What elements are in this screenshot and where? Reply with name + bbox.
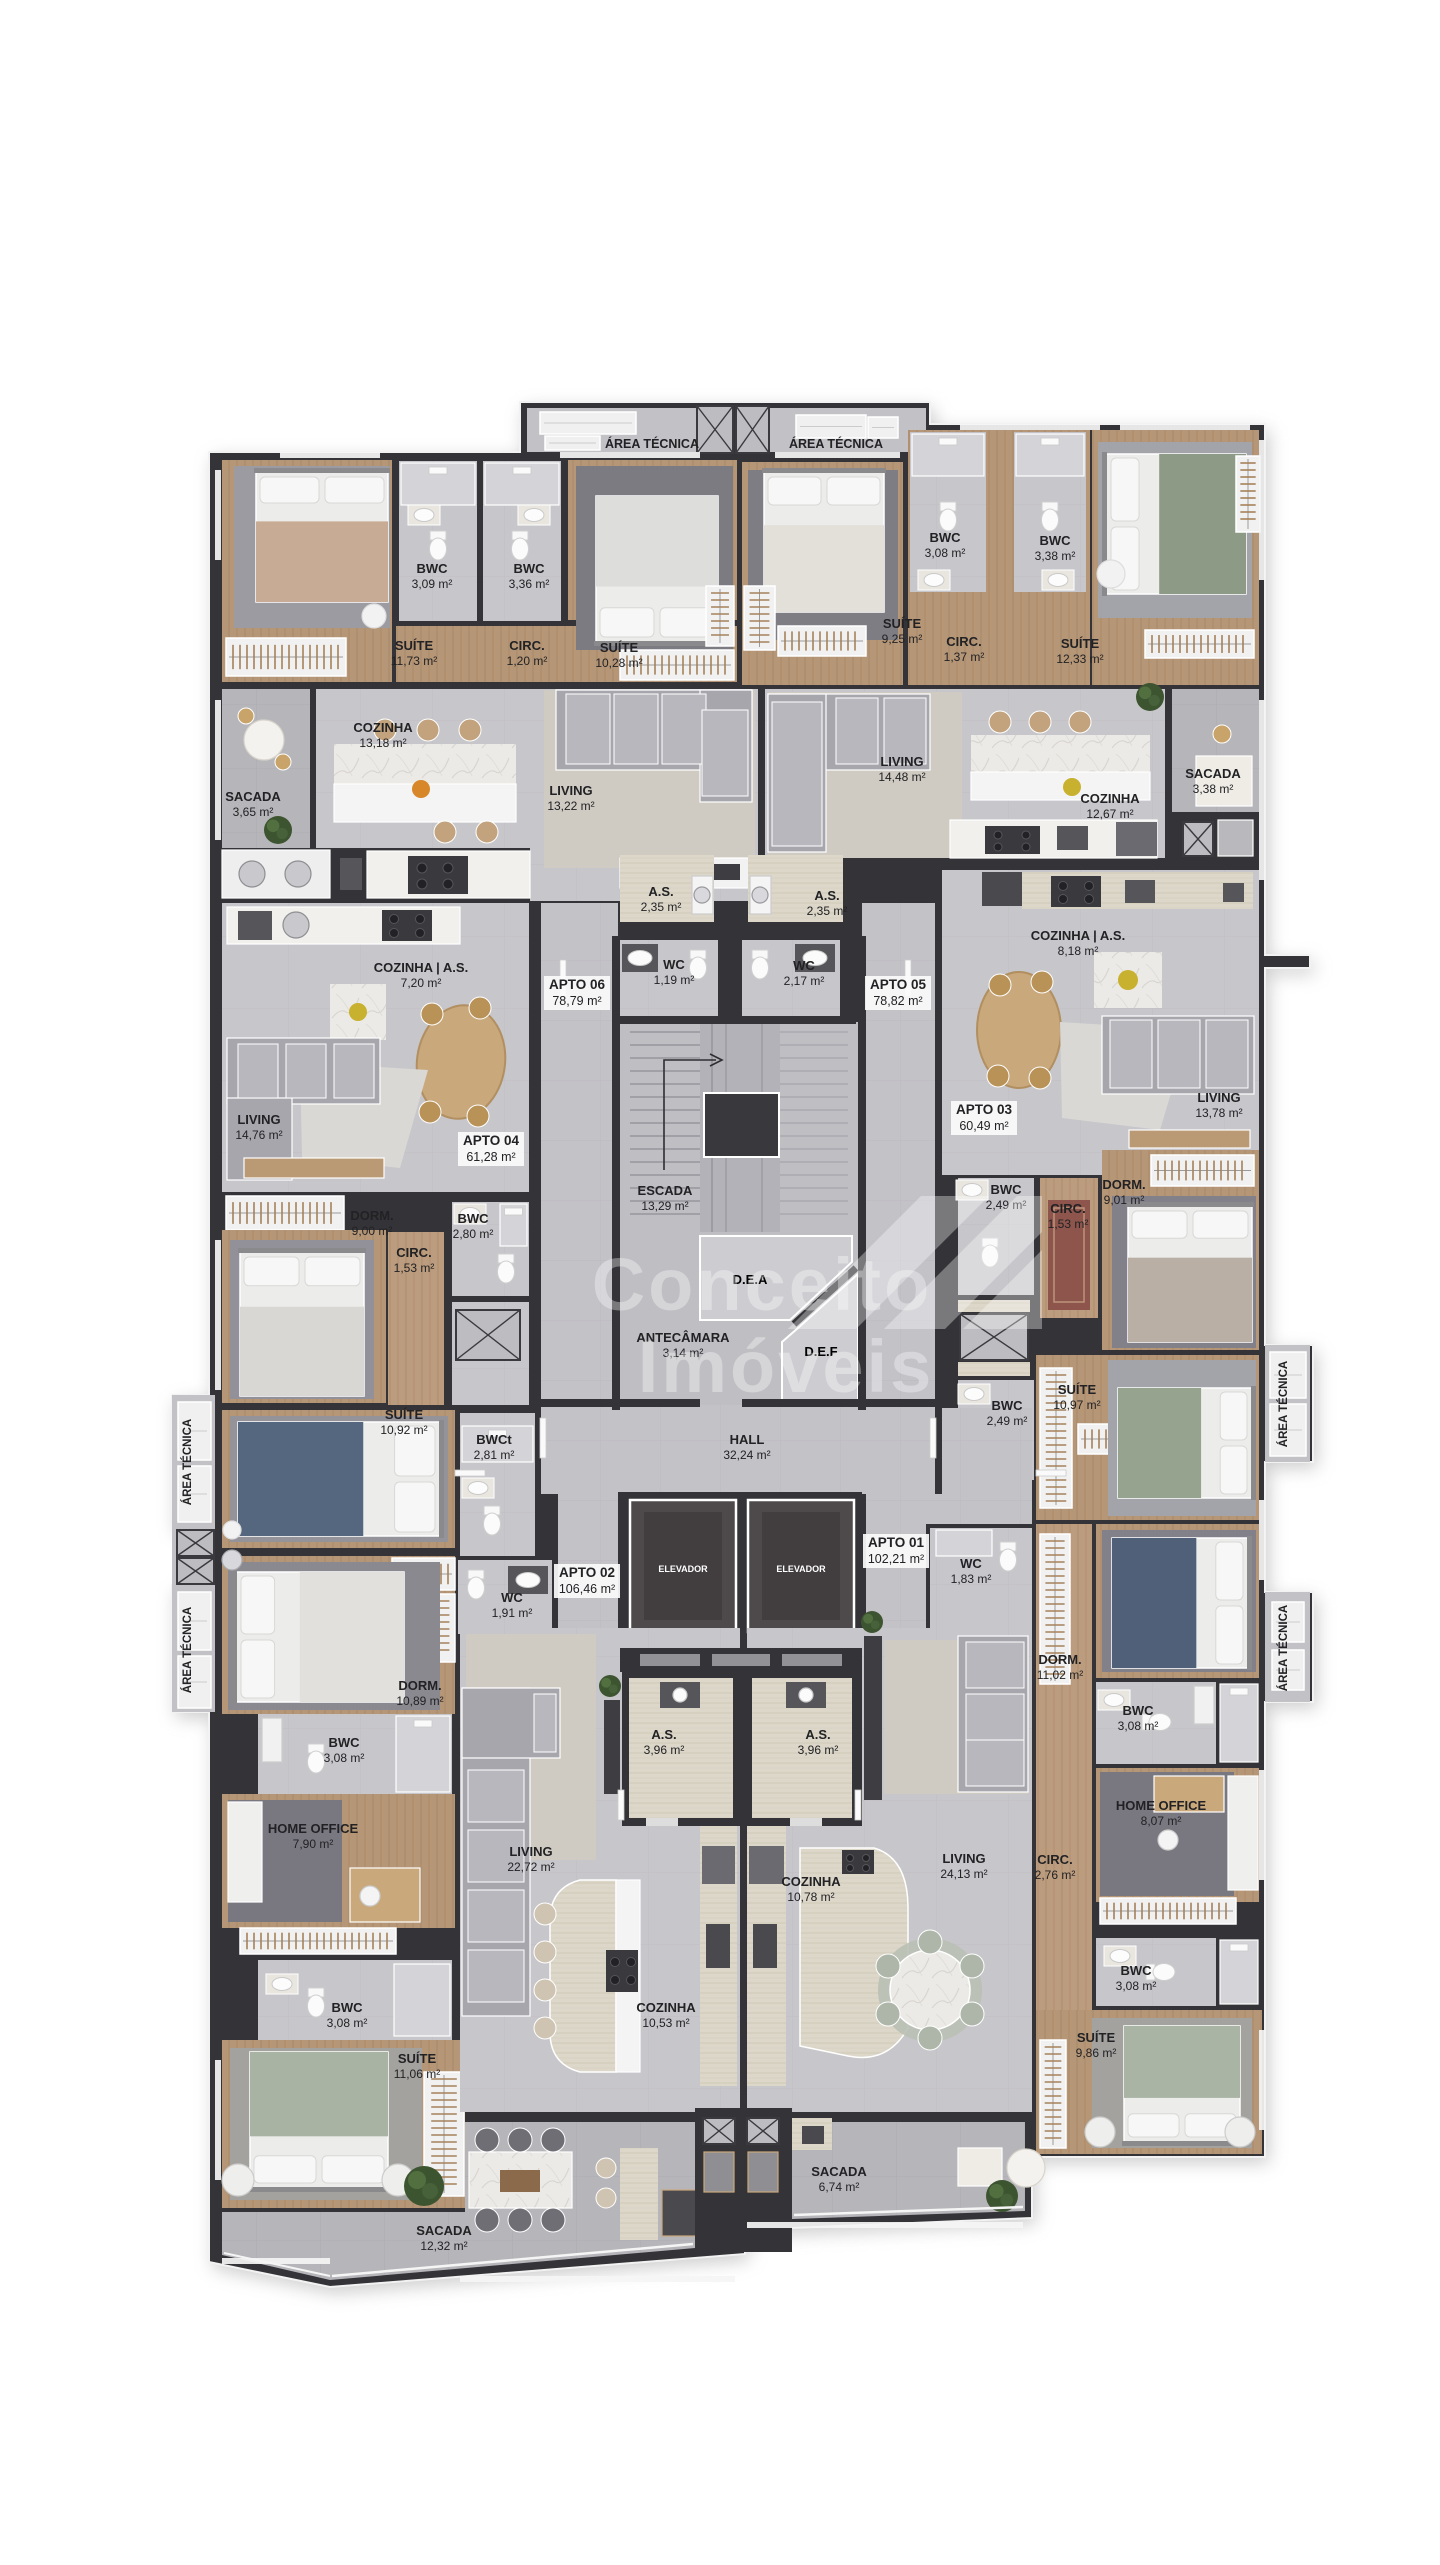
svg-text:BWC: BWC [1120, 1963, 1152, 1978]
svg-text:9,25 m²: 9,25 m² [882, 632, 923, 646]
svg-text:3,08 m²: 3,08 m² [1118, 1719, 1159, 1733]
svg-text:SUÍTE: SUÍTE [1058, 1382, 1097, 1397]
svg-text:SUÍTE: SUÍTE [398, 2051, 437, 2066]
svg-text:COZINHA | A.S.: COZINHA | A.S. [374, 960, 468, 975]
svg-text:WC: WC [960, 1556, 982, 1571]
svg-text:APTO 05: APTO 05 [870, 977, 927, 992]
svg-text:SACADA: SACADA [225, 789, 281, 804]
svg-text:SUÍTE: SUÍTE [883, 616, 922, 631]
svg-text:ÁREA TÉCNICA: ÁREA TÉCNICA [181, 1607, 194, 1693]
svg-text:BWC: BWC [416, 561, 448, 576]
svg-text:CIRC.: CIRC. [946, 634, 981, 649]
svg-text:8,18 m²: 8,18 m² [1058, 944, 1099, 958]
svg-text:1,83 m²: 1,83 m² [951, 1572, 992, 1586]
svg-text:A.S.: A.S. [805, 1727, 830, 1742]
svg-text:78,82 m²: 78,82 m² [873, 994, 922, 1008]
svg-text:22,72 m²: 22,72 m² [507, 1860, 554, 1874]
svg-text:1,91 m²: 1,91 m² [492, 1606, 533, 1620]
svg-text:3,96 m²: 3,96 m² [798, 1743, 839, 1757]
svg-text:2,17 m²: 2,17 m² [784, 974, 825, 988]
svg-text:LIVING: LIVING [237, 1112, 280, 1127]
svg-text:61,28 m²: 61,28 m² [466, 1150, 515, 1164]
svg-text:HOME OFFICE: HOME OFFICE [1116, 1798, 1207, 1813]
svg-text:2,76 m²: 2,76 m² [1035, 1868, 1076, 1882]
svg-text:ESCADA: ESCADA [638, 1183, 694, 1198]
svg-text:DORM.: DORM. [398, 1678, 441, 1693]
svg-text:10,89 m²: 10,89 m² [396, 1694, 443, 1708]
svg-text:8,07 m²: 8,07 m² [1141, 1814, 1182, 1828]
svg-text:APTO 01: APTO 01 [868, 1535, 925, 1550]
svg-text:ÁREA TÉCNICA: ÁREA TÉCNICA [1277, 1361, 1290, 1447]
svg-text:CIRC.: CIRC. [509, 638, 544, 653]
svg-text:1,53 m²: 1,53 m² [394, 1261, 435, 1275]
svg-text:1,20 m²: 1,20 m² [507, 654, 548, 668]
svg-text:3,08 m²: 3,08 m² [324, 1751, 365, 1765]
svg-text:SACADA: SACADA [811, 2164, 867, 2179]
svg-text:WC: WC [501, 1590, 523, 1605]
svg-text:13,22 m²: 13,22 m² [547, 799, 594, 813]
svg-text:9,00 m²: 9,00 m² [352, 1224, 393, 1238]
svg-text:1,37 m²: 1,37 m² [944, 650, 985, 664]
svg-text:ELEVADOR: ELEVADOR [658, 1564, 708, 1574]
svg-text:11,02 m²: 11,02 m² [1037, 1668, 1083, 1682]
svg-text:APTO 02: APTO 02 [559, 1565, 615, 1580]
svg-text:HALL: HALL [730, 1432, 765, 1447]
svg-text:12,32 m²: 12,32 m² [420, 2239, 467, 2253]
svg-text:SUÍTE: SUÍTE [1061, 636, 1100, 651]
svg-text:A.S.: A.S. [651, 1727, 676, 1742]
svg-text:BWC: BWC [929, 530, 961, 545]
svg-text:CIRC.: CIRC. [1037, 1852, 1072, 1867]
svg-text:2,49 m²: 2,49 m² [987, 1414, 1028, 1428]
svg-text:9,01 m²: 9,01 m² [1104, 1193, 1145, 1207]
svg-text:BWC: BWC [990, 1182, 1022, 1197]
svg-text:14,48 m²: 14,48 m² [878, 770, 925, 784]
svg-text:3,08 m²: 3,08 m² [925, 546, 966, 560]
svg-text:ÁREA TÉCNICA: ÁREA TÉCNICA [605, 436, 699, 451]
svg-text:14,76 m²: 14,76 m² [235, 1128, 282, 1142]
svg-text:A.S.: A.S. [648, 884, 673, 899]
svg-text:7,90 m²: 7,90 m² [293, 1837, 334, 1851]
svg-text:11,06 m²: 11,06 m² [394, 2067, 440, 2081]
svg-text:2,35 m²: 2,35 m² [807, 904, 848, 918]
svg-text:10,92 m²: 10,92 m² [380, 1423, 427, 1437]
svg-text:BWC: BWC [457, 1211, 489, 1226]
svg-text:LIVING: LIVING [1197, 1090, 1240, 1105]
svg-text:13,78 m²: 13,78 m² [1195, 1106, 1242, 1120]
svg-text:2,81 m²: 2,81 m² [474, 1448, 515, 1462]
svg-text:7,20 m²: 7,20 m² [401, 976, 442, 990]
svg-text:BWC: BWC [331, 2000, 363, 2015]
svg-text:3,96 m²: 3,96 m² [644, 1743, 685, 1757]
svg-text:HOME OFFICE: HOME OFFICE [268, 1821, 359, 1836]
svg-text:COZINHA: COZINHA [636, 2000, 696, 2015]
svg-text:WC: WC [793, 958, 815, 973]
svg-text:3,36 m²: 3,36 m² [509, 577, 550, 591]
svg-text:1,53 m²: 1,53 m² [1048, 1217, 1089, 1231]
svg-text:COZINHA: COZINHA [353, 720, 413, 735]
svg-text:Imóveis: Imóveis [638, 1325, 935, 1408]
svg-text:CIRC.: CIRC. [1050, 1201, 1085, 1216]
svg-text:102,21 m²: 102,21 m² [868, 1552, 924, 1566]
svg-text:106,46 m²: 106,46 m² [559, 1582, 615, 1596]
svg-text:Conceito: Conceito [592, 1243, 933, 1326]
svg-text:CIRC.: CIRC. [396, 1245, 431, 1260]
svg-text:ÁREA TÉCNICA: ÁREA TÉCNICA [181, 1419, 194, 1505]
svg-text:3,38 m²: 3,38 m² [1193, 782, 1234, 796]
svg-text:LIVING: LIVING [549, 783, 592, 798]
svg-text:WC: WC [663, 957, 685, 972]
svg-text:3,08 m²: 3,08 m² [1116, 1979, 1157, 1993]
svg-text:1,19 m²: 1,19 m² [654, 973, 695, 987]
svg-text:LIVING: LIVING [509, 1844, 552, 1859]
svg-text:32,24 m²: 32,24 m² [723, 1448, 770, 1462]
svg-text:APTO 03: APTO 03 [956, 1102, 1013, 1117]
svg-text:COZINHA: COZINHA [781, 1874, 841, 1889]
svg-text:ÁREA TÉCNICA: ÁREA TÉCNICA [789, 436, 883, 451]
svg-text:SUÍTE: SUÍTE [385, 1407, 424, 1422]
svg-text:13,29 m²: 13,29 m² [641, 1199, 688, 1213]
svg-text:10,97 m²: 10,97 m² [1053, 1398, 1100, 1412]
svg-text:13,18 m²: 13,18 m² [359, 736, 406, 750]
svg-text:2,35 m²: 2,35 m² [641, 900, 682, 914]
svg-text:DORM.: DORM. [350, 1208, 393, 1223]
svg-text:9,86 m²: 9,86 m² [1076, 2046, 1117, 2060]
svg-text:78,79 m²: 78,79 m² [552, 994, 601, 1008]
svg-text:BWC: BWC [991, 1398, 1023, 1413]
svg-text:10,78 m²: 10,78 m² [787, 1890, 834, 1904]
svg-text:LIVING: LIVING [942, 1851, 985, 1866]
svg-text:ÁREA TÉCNICA: ÁREA TÉCNICA [1277, 1605, 1290, 1691]
svg-text:BWC: BWC [513, 561, 545, 576]
svg-text:LIVING: LIVING [880, 754, 923, 769]
svg-text:3,38 m²: 3,38 m² [1035, 549, 1076, 563]
svg-text:10,53 m²: 10,53 m² [642, 2016, 689, 2030]
svg-text:BWCt: BWCt [476, 1432, 512, 1447]
svg-text:SUÍTE: SUÍTE [395, 638, 434, 653]
svg-text:12,33 m²: 12,33 m² [1056, 652, 1103, 666]
svg-text:12,67 m²: 12,67 m² [1086, 807, 1133, 821]
svg-text:24,13 m²: 24,13 m² [940, 1867, 987, 1881]
svg-text:SACADA: SACADA [416, 2223, 472, 2238]
svg-text:60,49 m²: 60,49 m² [959, 1119, 1008, 1133]
svg-text:COZINHA | A.S.: COZINHA | A.S. [1031, 928, 1125, 943]
svg-text:BWC: BWC [1039, 533, 1071, 548]
svg-text:SACADA: SACADA [1185, 766, 1241, 781]
svg-text:3,09 m²: 3,09 m² [412, 577, 453, 591]
svg-text:ELEVADOR: ELEVADOR [776, 1564, 826, 1574]
svg-text:11,73 m²: 11,73 m² [391, 654, 437, 668]
svg-text:3,08 m²: 3,08 m² [327, 2016, 368, 2030]
svg-text:6,74 m²: 6,74 m² [819, 2180, 860, 2194]
svg-text:10,28 m²: 10,28 m² [595, 656, 642, 670]
svg-text:SUÍTE: SUÍTE [1077, 2030, 1116, 2045]
svg-text:BWC: BWC [328, 1735, 360, 1750]
svg-text:A.S.: A.S. [814, 888, 839, 903]
svg-text:3,65 m²: 3,65 m² [233, 805, 274, 819]
svg-text:SUÍTE: SUÍTE [600, 640, 639, 655]
svg-text:DORM.: DORM. [1102, 1177, 1145, 1192]
svg-text:APTO 04: APTO 04 [463, 1133, 520, 1148]
svg-text:COZINHA: COZINHA [1080, 791, 1140, 806]
svg-text:APTO 06: APTO 06 [549, 977, 606, 992]
svg-text:DORM.: DORM. [1038, 1652, 1081, 1667]
svg-text:2,80 m²: 2,80 m² [453, 1227, 494, 1241]
svg-text:BWC: BWC [1122, 1703, 1154, 1718]
